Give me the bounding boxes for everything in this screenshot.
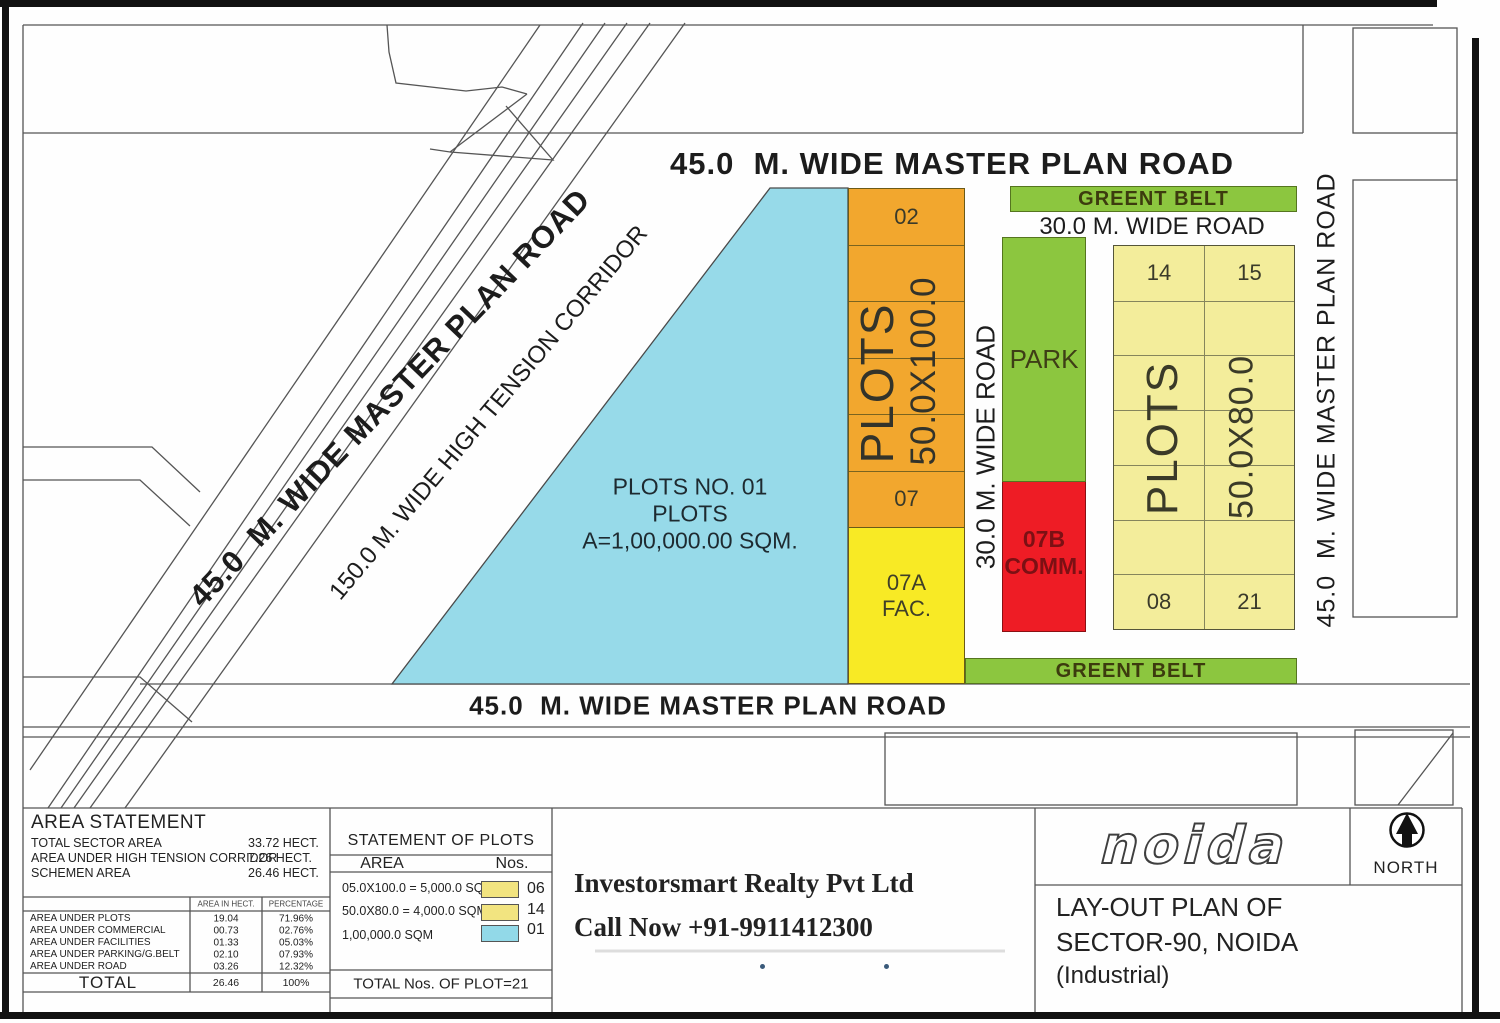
frame-right (1472, 38, 1479, 1019)
table-row-pct: 02.76% (279, 926, 313, 937)
summary-value: 7.26 HECT. (248, 851, 312, 865)
table-row-hect: 19.04 (213, 914, 238, 925)
plot-01-line3: A=1,00,000.00 SQM. (582, 528, 797, 555)
legend-swatch-yellow (481, 904, 519, 921)
artifact-dot (760, 964, 765, 969)
plot-15-label: 15 (1237, 260, 1261, 286)
table-row-hect: 03.26 (213, 962, 238, 973)
grid-plots-label: PLOTS (1138, 361, 1188, 515)
plot-07-label: 07 (894, 486, 918, 512)
grid-size-label: 50.0X80.0 (1223, 355, 1262, 519)
summary-value: 33.72 HECT. (248, 836, 319, 850)
plot-07a-facility: 07A FAC. (848, 528, 965, 684)
commercial-number: 07B (1003, 526, 1085, 553)
plot-07: 07 (849, 471, 964, 528)
artifact-dot (884, 964, 889, 969)
plot-01-label: PLOTS NO. 01 PLOTS A=1,00,000.00 SQM. (582, 474, 797, 555)
table-row-label: AREA UNDER COMMERCIAL (30, 925, 166, 936)
total-pct: 100% (283, 977, 310, 989)
legend-row-nos: 14 (527, 901, 545, 919)
summary-label: AREA UNDER HIGH TENSION CORRIDOR (31, 851, 277, 865)
total-label: TOTAL (79, 973, 137, 993)
table-row-label: AREA UNDER FACILITIES (30, 937, 151, 948)
table-row-pct: 07.93% (279, 950, 313, 961)
grid-cell (1114, 520, 1204, 575)
facility-number: 07A (849, 570, 964, 596)
area-statement-title: AREA STATEMENT (31, 812, 206, 834)
plot-08: 08 (1114, 574, 1204, 629)
legend-row-area: 50.0X80.0 = 4,000.0 SQM. (342, 904, 490, 918)
green-belt-top: GREENT BELT (1010, 186, 1297, 212)
legend-row-nos: 06 (527, 880, 545, 898)
layout-plan-page: 02 07 07A FAC. PARK 07B COMM. GREENT BEL… (0, 0, 1500, 1023)
green-belt-bottom: GREENT BELT (965, 658, 1297, 684)
legend-row-area: 05.0X100.0 = 5,000.0 SQM. (342, 881, 497, 895)
green-belt-top-label: GREENT BELT (1011, 187, 1296, 211)
plot-01-line1: PLOTS NO. 01 (582, 474, 797, 501)
road-label-top: 45.0 M. WIDE MASTER PLAN ROAD (670, 146, 1234, 182)
promo-line2: Call Now +91-9911412300 (574, 912, 873, 943)
table-row-label: AREA UNDER PARKING/G.BELT (30, 949, 180, 960)
frame-top (0, 0, 1437, 7)
col-nos: Nos. (496, 855, 529, 873)
grid-cell (1204, 301, 1294, 356)
strip-plots-label: PLOTS (850, 303, 904, 464)
summary-label: SCHEMEN AREA (31, 866, 130, 880)
plot-01-line2: PLOTS (582, 501, 797, 528)
col-area: AREA (360, 855, 404, 873)
table-row-hect: 01.33 (213, 938, 238, 949)
summary-value: 26.46 HECT. (248, 866, 319, 880)
frame-bottom (0, 1012, 1500, 1019)
table-row-hect: 02.10 (213, 950, 238, 961)
facility-type: FAC. (849, 596, 964, 622)
road-30m-horizontal-label: 30.0 M. WIDE ROAD (1039, 213, 1264, 241)
plot-02: 02 (849, 189, 964, 245)
plot-02-label: 02 (894, 204, 918, 230)
promo-line1: Investorsmart Realty Pvt Ltd (574, 868, 914, 899)
statement-of-plots-title: STATEMENT OF PLOTS (348, 832, 535, 850)
strip-size-label: 50.0X100.0 (904, 276, 944, 465)
plot-21: 21 (1204, 574, 1294, 629)
plot-14-label: 14 (1147, 260, 1171, 286)
table-row-label: AREA UNDER PLOTS (30, 913, 131, 924)
plan-title-line1: LAY-OUT PLAN OF (1056, 892, 1282, 923)
plot-08-label: 08 (1147, 589, 1171, 615)
legend-swatch-yellow (481, 881, 519, 898)
plot-07b-commercial: 07B COMM. (1002, 482, 1086, 632)
table-row-pct: 12.32% (279, 962, 313, 973)
road-label-bottom: 45.0 M. WIDE MASTER PLAN ROAD (469, 691, 947, 722)
plan-title-line3: (Industrial) (1056, 962, 1169, 990)
commercial-type: COMM. (1003, 553, 1085, 580)
plot-14: 14 (1114, 246, 1204, 301)
legend-row-area: 1,00,000.0 SQM (342, 928, 433, 942)
legend-row-nos: 01 (527, 921, 545, 939)
green-belt-bottom-label: GREENT BELT (966, 659, 1296, 683)
legend-swatch-cyan (481, 925, 519, 942)
table-row-pct: 71.96% (279, 914, 313, 925)
col-header-pct: PERCENTAGE (269, 900, 324, 909)
grid-cell (1204, 520, 1294, 575)
plot-15: 15 (1204, 246, 1294, 301)
frame-left (2, 2, 9, 1019)
table-row-hect: 00.73 (213, 926, 238, 937)
table-row-pct: 05.03% (279, 938, 313, 949)
total-plots-label: TOTAL Nos. OF PLOT=21 (353, 976, 528, 993)
north-label: NORTH (1373, 858, 1438, 878)
plot-21-label: 21 (1237, 589, 1261, 615)
summary-label: TOTAL SECTOR AREA (31, 836, 162, 850)
park-label: PARK (1003, 238, 1085, 481)
road-30m-vertical-label: 30.0 M. WIDE ROAD (971, 325, 1002, 569)
road-label-right: 45.0 M. WIDE MASTER PLAN ROAD (1313, 172, 1342, 627)
total-hect: 26.46 (213, 977, 239, 989)
table-row-label: AREA UNDER ROAD (30, 961, 127, 972)
north-arrow-icon (1387, 810, 1427, 850)
plan-title-line2: SECTOR-90, NOIDA (1056, 927, 1298, 958)
noida-logo: noida (1095, 816, 1298, 876)
park-block: PARK (1002, 237, 1086, 482)
col-header-hect: AREA IN HECT. (198, 900, 255, 909)
grid-cell (1114, 301, 1204, 356)
